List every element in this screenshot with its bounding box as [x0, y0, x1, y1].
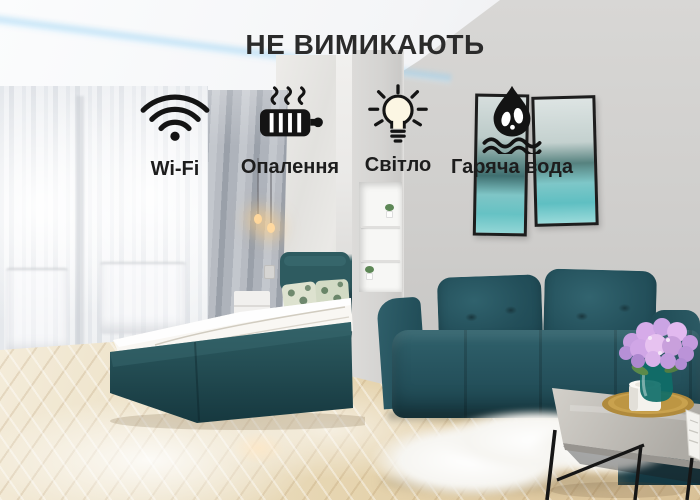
feature-light: Світло — [352, 84, 444, 177]
feature-heating: Опалення — [235, 86, 345, 179]
apartment-promo-image: НЕ ВИМИКАЮТЬ Wi-Fi — [0, 0, 700, 500]
hot-water-icon — [479, 84, 545, 154]
radiator-icon — [255, 86, 325, 146]
feature-label: Wi-Fi — [151, 158, 200, 181]
feature-label: Опалення — [241, 156, 339, 179]
feature-hot-water: Гаряча вода — [446, 84, 578, 179]
wifi-icon — [140, 88, 210, 142]
feature-label: Гаряча вода — [451, 156, 573, 179]
page-title: НЕ ВИМИКАЮТЬ — [0, 29, 700, 61]
lightbulb-icon — [367, 84, 429, 150]
feature-label: Світло — [365, 154, 431, 177]
feature-wifi: Wi-Fi — [130, 88, 220, 181]
overlay: НЕ ВИМИКАЮТЬ Wi-Fi — [0, 0, 700, 500]
